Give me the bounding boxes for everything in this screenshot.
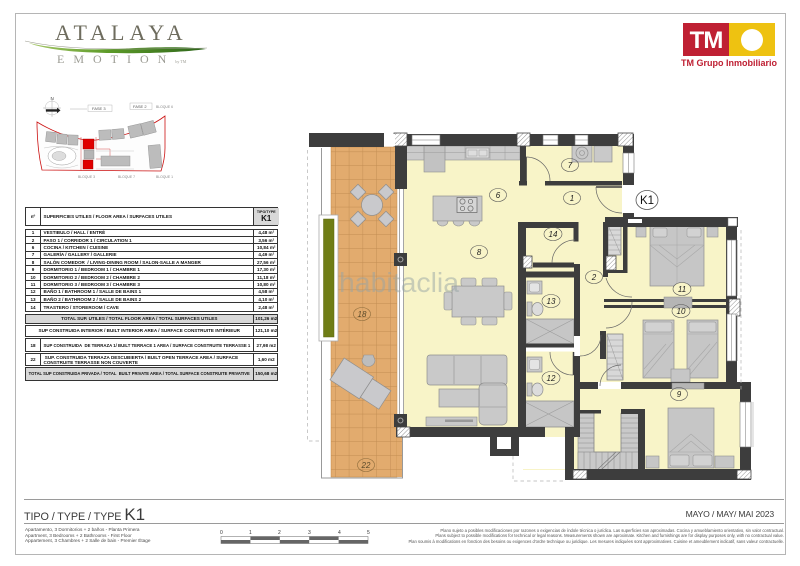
svg-text:14: 14 bbox=[549, 230, 558, 239]
svg-text:4: 4 bbox=[338, 530, 341, 536]
svg-text:13: 13 bbox=[547, 297, 556, 306]
svg-text:7: 7 bbox=[568, 161, 573, 170]
svg-text:10: 10 bbox=[677, 307, 686, 316]
svg-text:6: 6 bbox=[496, 191, 501, 200]
svg-text:8: 8 bbox=[477, 248, 482, 257]
svg-text:3: 3 bbox=[308, 530, 311, 536]
svg-text:12: 12 bbox=[547, 374, 556, 383]
svg-text:habitaclia: habitaclia bbox=[339, 268, 459, 298]
svg-text:9: 9 bbox=[677, 390, 682, 399]
svg-text:K1: K1 bbox=[640, 195, 654, 207]
svg-text:2: 2 bbox=[278, 530, 281, 536]
svg-text:1: 1 bbox=[249, 530, 252, 536]
svg-text:5: 5 bbox=[367, 530, 370, 536]
svg-text:11: 11 bbox=[678, 285, 686, 294]
svg-text:0: 0 bbox=[220, 530, 223, 536]
svg-text:1: 1 bbox=[570, 194, 574, 203]
svg-text:22: 22 bbox=[361, 461, 371, 470]
svg-text:2: 2 bbox=[591, 273, 597, 282]
svg-text:18: 18 bbox=[358, 310, 367, 319]
